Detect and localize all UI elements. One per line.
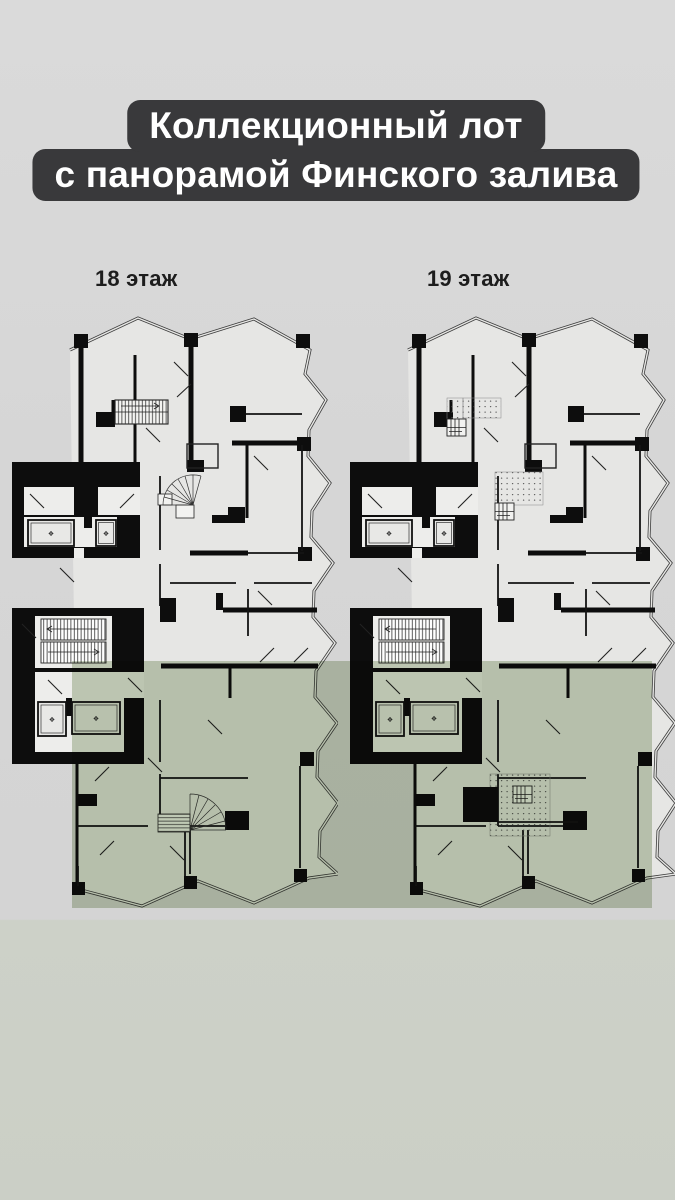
title-text-line2: с панорамой Финского залива xyxy=(54,154,617,195)
story-canvas: Коллекционный лот с панорамой Финского з… xyxy=(0,0,675,1200)
title-badge-line1: Коллекционный лот xyxy=(127,100,545,152)
floor-label-18: 18 этаж xyxy=(95,266,177,292)
floor-label-19: 19 этаж xyxy=(427,266,509,292)
title-badge-line2: с панорамой Финского залива xyxy=(32,149,639,201)
title-text-line1: Коллекционный лот xyxy=(149,105,523,146)
highlight-overlay xyxy=(72,661,652,908)
